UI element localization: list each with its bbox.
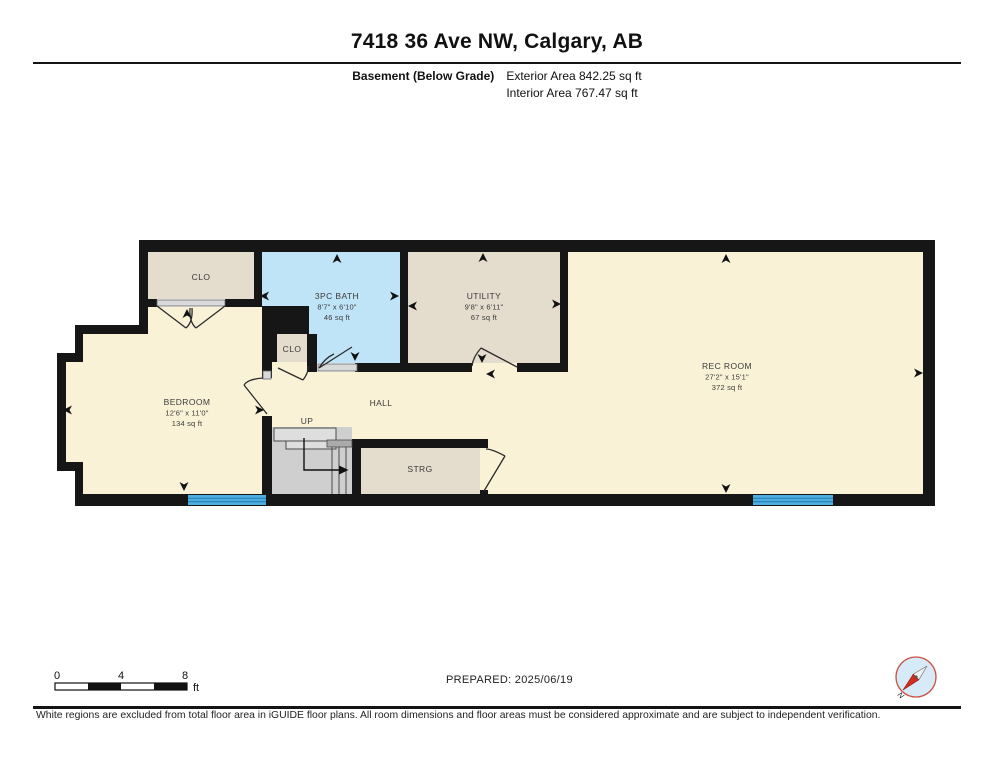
room-area-utility: 67 sq ft: [471, 313, 498, 322]
room-area-bedroom: 134 sq ft: [172, 419, 203, 428]
prepared-date: PREPARED: 2025/06/19: [446, 674, 573, 686]
room-area-recroom: 372 sq ft: [712, 383, 743, 392]
floor-plan-page: 7418 36 Ave NW, Calgary, AB Basement (Be…: [0, 0, 994, 768]
disclaimer-text: White regions are excluded from total fl…: [36, 710, 956, 721]
room-dims-recroom: 27'2" x 15'1": [705, 373, 749, 382]
closet-small-door-gap: [272, 362, 307, 372]
floorplan-drawing: CLO 3PC BATH 8'7" x 6'10" 46 sq ft UTILI…: [0, 0, 994, 768]
closet-upper-threshold: [157, 300, 225, 306]
scale-end-label: 8: [182, 670, 188, 682]
footer-divider: [33, 706, 961, 709]
utility-door-gap: [472, 363, 517, 372]
room-label-recroom: REC ROOM: [702, 361, 752, 371]
room-label-clo-upper: CLO: [192, 272, 211, 282]
scale-bar: 0 4 8 ft: [54, 670, 199, 694]
room-dims-bedroom: 12'6" x 11'0": [165, 409, 208, 418]
room-label-utility: UTILITY: [467, 291, 501, 301]
scale-start-label: 0: [54, 670, 60, 682]
scale-mid-label: 4: [118, 670, 124, 682]
floor-fills: [66, 252, 925, 500]
room-area-bath: 46 sq ft: [324, 313, 351, 322]
bedroom-door-slab: [263, 371, 271, 379]
scale-unit-label: ft: [193, 682, 199, 694]
room-label-bath: 3PC BATH: [315, 291, 359, 301]
room-label-hall: HALL: [370, 398, 393, 408]
room-label-clo-small: CLO: [283, 344, 302, 354]
room-label-storage: STRG: [407, 464, 432, 474]
room-dims-bath: 8'7" x 6'10": [317, 303, 356, 312]
stairs-up-label: UP: [301, 416, 314, 426]
compass-north-label: N: [896, 690, 907, 701]
window-bedroom: [188, 495, 266, 505]
window-recroom: [753, 495, 833, 505]
room-dims-utility: 9'8" x 6'11": [465, 303, 504, 312]
room-label-bedroom: BEDROOM: [164, 397, 211, 407]
compass-icon: N: [896, 657, 936, 701]
storage-door-gap: [480, 448, 488, 490]
